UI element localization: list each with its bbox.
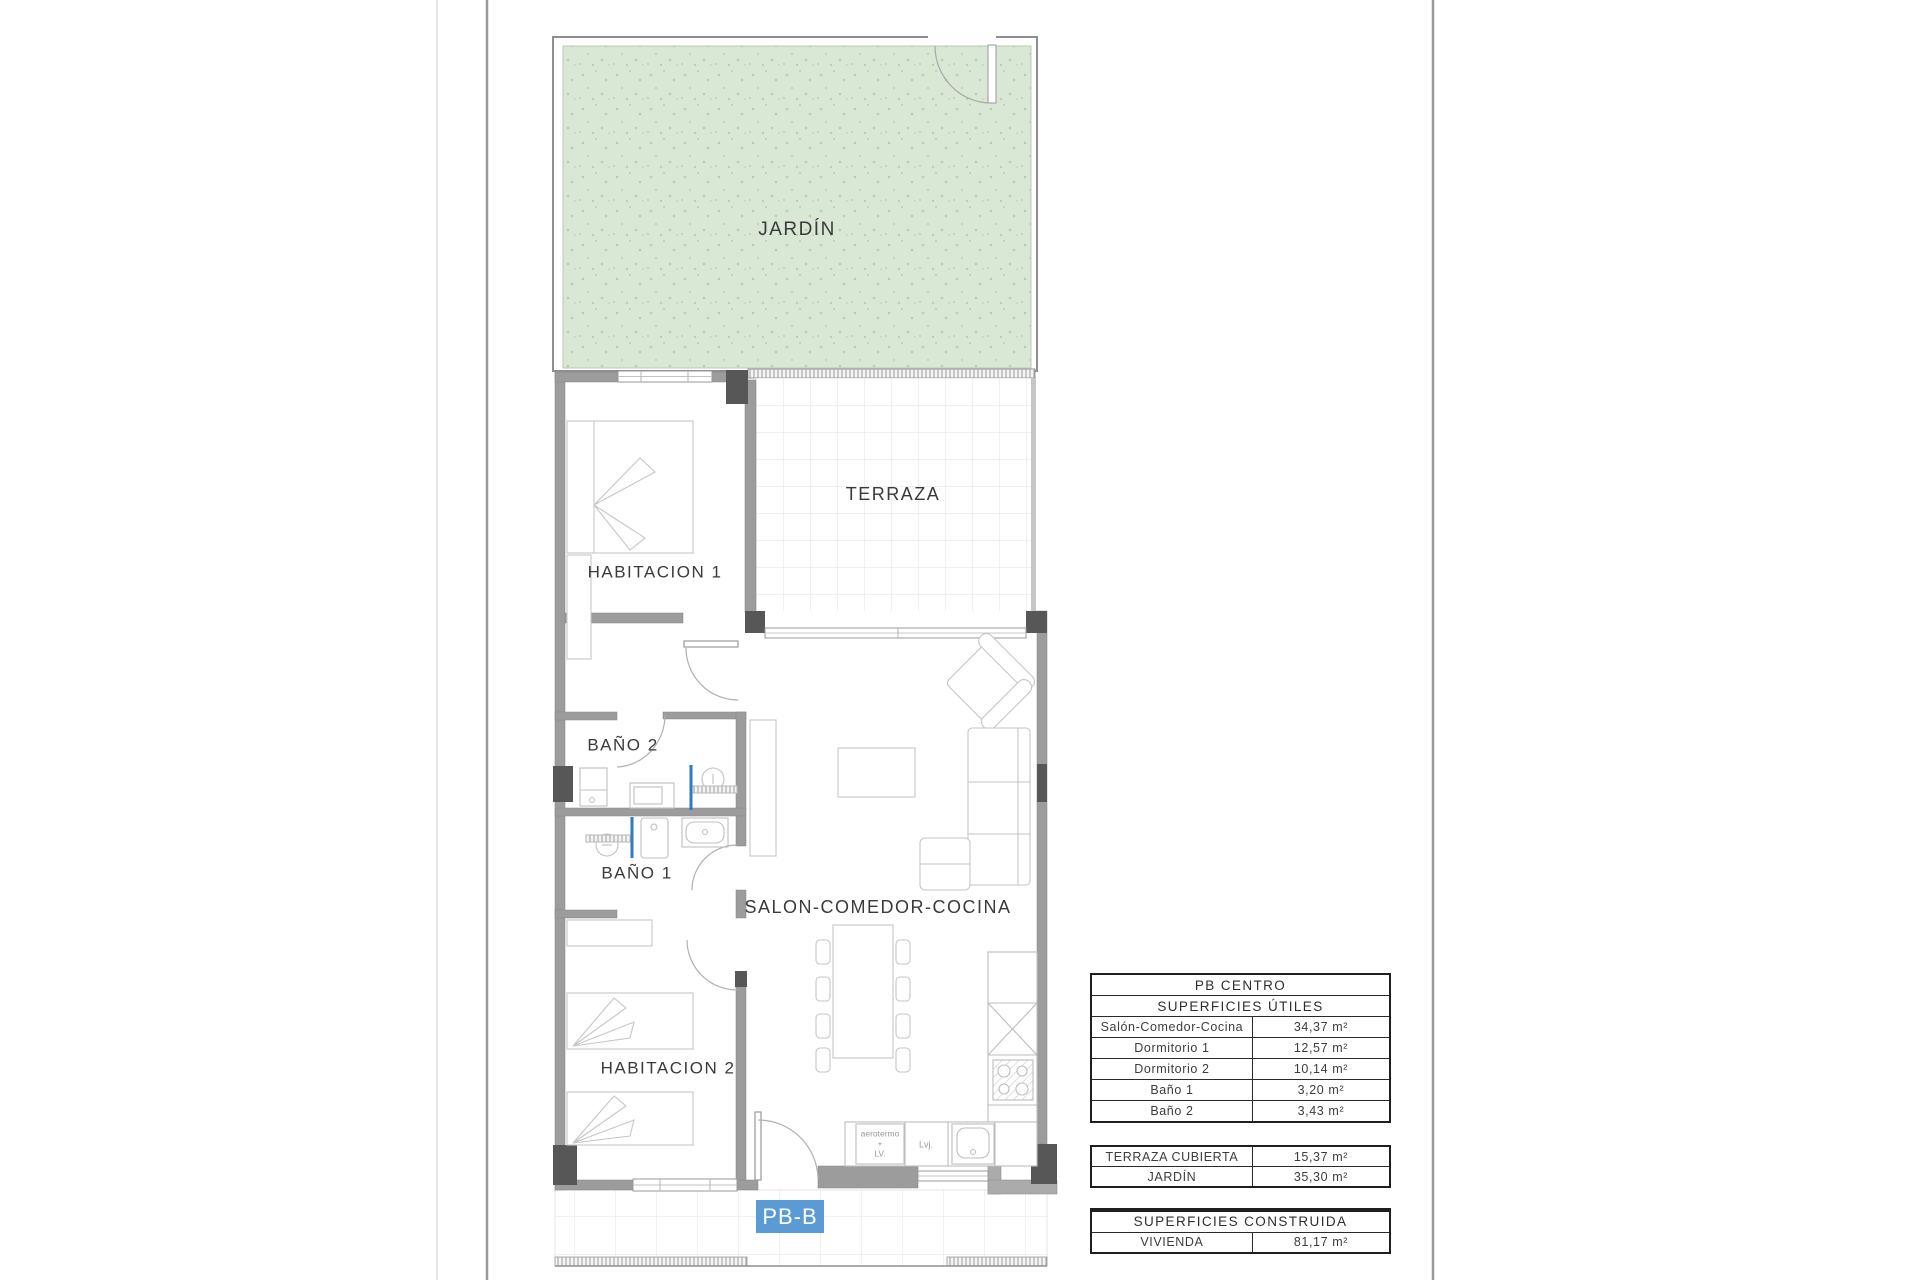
- row-value: 3,20 m²: [1253, 1080, 1389, 1100]
- table-row: TERRAZA CUBIERTA 15,37 m²: [1092, 1147, 1389, 1166]
- armchair: [937, 631, 1039, 733]
- row-value: 15,37 m²: [1253, 1147, 1389, 1166]
- table-row: Salón-Comedor-Cocina 34,37 m²: [1092, 1016, 1389, 1037]
- garden-gate-opening: [928, 30, 996, 45]
- row-value: 10,14 m²: [1253, 1059, 1389, 1079]
- row-value: 81,17 m²: [1253, 1233, 1389, 1253]
- garden-area: [553, 30, 1037, 371]
- door-leaf-habitacion1: [684, 641, 738, 647]
- row-label: Dormitorio 2: [1092, 1059, 1253, 1079]
- label-terraza: TERRAZA: [846, 484, 941, 504]
- sheet-label-badge: PB-B: [756, 1200, 824, 1233]
- table-subtitle: SUPERFICIES ÚTILES: [1092, 995, 1389, 1016]
- row-label: JARDÍN: [1092, 1167, 1253, 1186]
- table-title: PB CENTRO: [1092, 975, 1389, 995]
- row-label: Baño 2: [1092, 1101, 1253, 1121]
- label-dishwasher: Lvj.: [919, 1139, 933, 1149]
- door-arc-habitacion1: [686, 648, 738, 700]
- table-row: VIVIENDA 81,17 m²: [1092, 1232, 1389, 1253]
- door-leaf-entry: [755, 1112, 761, 1180]
- table-superficies-construida: SUPERFICIES CONSTRUIDA VIVIENDA 81,17 m²: [1090, 1208, 1391, 1254]
- window-habitacion1: [618, 371, 712, 382]
- row-label: VIVIENDA: [1092, 1233, 1253, 1253]
- label-habitacion1: HABITACION 1: [588, 562, 723, 581]
- table-row: JARDÍN 35,30 m²: [1092, 1166, 1389, 1186]
- garden-gate-leaf: [988, 45, 996, 103]
- window-kitchen: [918, 1171, 988, 1181]
- floor-plan-sheet: JARDÍN TERRAZA HABITACION 1 BAÑO 2 BAÑO …: [0, 0, 1920, 1280]
- row-value: 35,30 m²: [1253, 1167, 1389, 1186]
- window-habitacion2: [633, 1179, 737, 1191]
- label-aerotermo-2: +: [878, 1138, 883, 1148]
- row-label: Dormitorio 1: [1092, 1038, 1253, 1058]
- table-row: Dormitorio 1 12,57 m²: [1092, 1037, 1389, 1058]
- label-jardin: JARDÍN: [758, 219, 836, 240]
- dining-set: [816, 925, 910, 1072]
- garden-terrace-fence: [748, 369, 1035, 378]
- furniture-habitacion1: [567, 421, 693, 659]
- furniture-habitacion2: [567, 920, 693, 1145]
- table-row: Dormitorio 2 10,14 m²: [1092, 1058, 1389, 1079]
- door-arc-habitacion2: [687, 940, 737, 990]
- table-superficies-utiles: PB CENTRO SUPERFICIES ÚTILES Salón-Comed…: [1090, 973, 1391, 1123]
- table-row: Baño 1 3,20 m²: [1092, 1079, 1389, 1100]
- label-aerotermo-1: aerotermo: [861, 1128, 900, 1138]
- row-value: 3,43 m²: [1253, 1101, 1389, 1121]
- label-bano1: BAÑO 1: [601, 863, 672, 882]
- floor-plan-drawing: JARDÍN TERRAZA HABITACION 1 BAÑO 2 BAÑO …: [0, 0, 1920, 1280]
- label-bano2: BAÑO 2: [587, 735, 658, 754]
- row-value: 34,37 m²: [1253, 1017, 1389, 1037]
- table-title: SUPERFICIES CONSTRUIDA: [1092, 1212, 1389, 1232]
- row-label: Baño 1: [1092, 1080, 1253, 1100]
- table-row: Baño 2 3,43 m²: [1092, 1100, 1389, 1121]
- sheet-label-text: PB-B: [762, 1204, 817, 1230]
- hob: [993, 1060, 1033, 1100]
- fixtures-bano1: [586, 817, 728, 858]
- label-salon: SALON-COMEDOR-COCINA: [744, 897, 1011, 917]
- label-habitacion2: HABITACION 2: [601, 1058, 736, 1077]
- furniture-salon: [750, 631, 1039, 890]
- table-superficies-exteriores: TERRAZA CUBIERTA 15,37 m² JARDÍN 35,30 m…: [1090, 1145, 1391, 1188]
- door-arc-entry: [758, 1120, 818, 1178]
- fixtures-bano2: [580, 765, 737, 810]
- label-aerotermo-3: LV.: [874, 1148, 885, 1158]
- row-value: 12,57 m²: [1253, 1038, 1389, 1058]
- row-label: TERRAZA CUBIERTA: [1092, 1147, 1253, 1166]
- door-arc-bano1: [692, 845, 737, 890]
- row-label: Salón-Comedor-Cocina: [1092, 1017, 1253, 1037]
